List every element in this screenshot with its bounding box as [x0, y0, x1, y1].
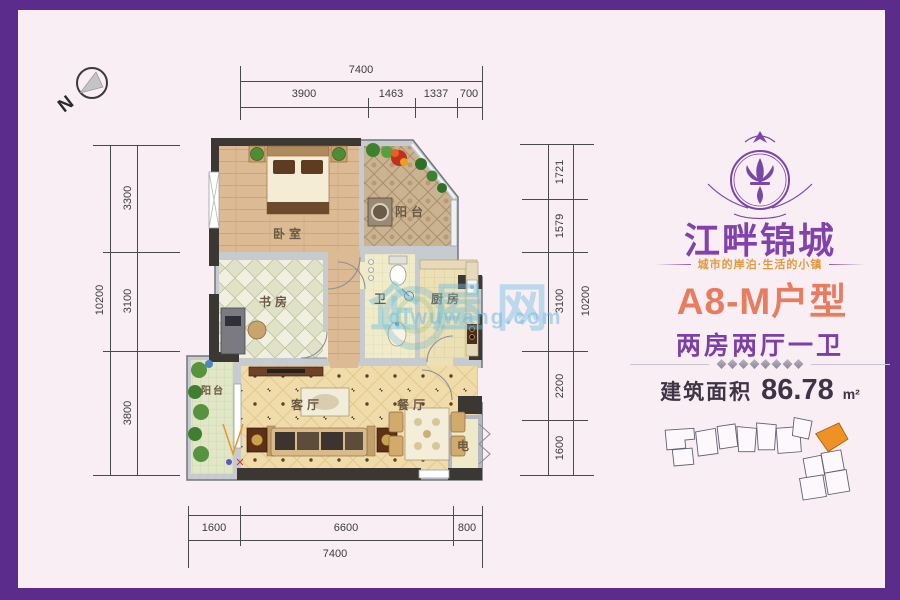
dim-label: 1600 — [554, 436, 566, 460]
dim-label: 1579 — [554, 214, 566, 238]
dim-label: 1463 — [379, 88, 403, 100]
tagline-flourish-right — [829, 264, 865, 265]
area-unit: m² — [843, 386, 860, 402]
dim-label: 1337 — [424, 88, 448, 100]
room-label-elevator: 电 — [457, 438, 473, 453]
dim-label: 700 — [460, 88, 478, 100]
dim-label: 7400 — [349, 64, 373, 76]
dim-label: 1600 — [202, 522, 226, 534]
site-key-plan — [658, 412, 873, 511]
dim-label: 800 — [458, 522, 476, 534]
dim-label: 10200 — [580, 286, 592, 317]
brand-emblem — [690, 128, 830, 220]
dim-label: 1721 — [554, 160, 566, 184]
unit-type-title: A8-M户型 — [677, 271, 847, 325]
dim-label: 2200 — [554, 374, 566, 398]
area-value: 86.78 — [761, 374, 834, 407]
divider-diamonds — [709, 361, 811, 368]
area-row: 建筑面积 86.78 m² — [630, 374, 890, 407]
floor-drain — [226, 459, 232, 465]
washing-machine — [368, 198, 392, 226]
dim-label: 7400 — [323, 548, 347, 560]
frame-top — [0, 0, 900, 10]
room-label-balcony-top: 阳台 — [395, 204, 427, 219]
dim-label: 10200 — [94, 285, 106, 316]
compass-north-label: N — [54, 92, 78, 117]
tv-console — [249, 367, 323, 376]
dim-label: 3100 — [122, 289, 134, 313]
frame-left — [0, 0, 18, 600]
room-label-balcony-bottom: 阳台 — [201, 384, 225, 397]
room-label-dining: 餐厅 — [397, 397, 429, 412]
dim-label: 3800 — [122, 401, 134, 425]
balcony-top-floor — [364, 146, 453, 246]
flyer-page: N 7400 3900 1463 1337 700 1600 6600 800 … — [0, 0, 900, 600]
frame-right — [885, 0, 900, 600]
fleur-de-lis-icon — [746, 131, 774, 204]
north-compass-icon: N — [48, 55, 118, 127]
unit-layout: 两房两厅一卫 — [676, 326, 844, 362]
frame-bottom — [0, 588, 900, 600]
area-label: 建筑面积 — [660, 376, 752, 406]
dim-label: 3900 — [292, 88, 316, 100]
room-label-living: 客厅 — [290, 397, 323, 412]
brand-tagline: 城市的岸泊·生活的小镇 — [698, 256, 823, 272]
tagline-flourish-left — [655, 264, 691, 265]
hall-floor — [328, 257, 360, 362]
dim-label: 6600 — [334, 522, 358, 534]
room-label-bedroom: 卧室 — [273, 226, 305, 241]
sofa — [267, 426, 375, 456]
room-label-study: 书房 — [259, 294, 291, 309]
highlighted-unit — [816, 423, 848, 452]
brand-tagline-row: 城市的岸泊·生活的小镇 — [630, 256, 890, 272]
watermark-url: qiwuwang.com — [388, 306, 563, 330]
dim-label: 3300 — [122, 186, 134, 210]
